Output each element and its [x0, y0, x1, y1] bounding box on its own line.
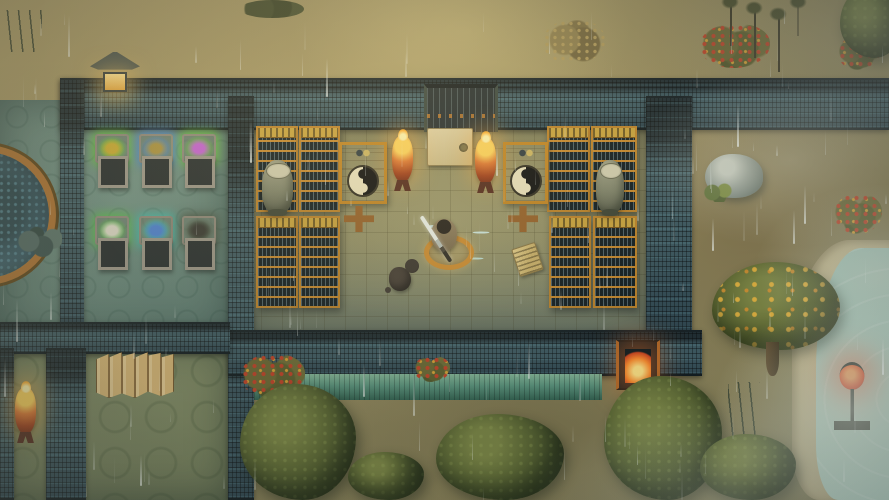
game-viewport — [0, 0, 889, 500]
player-character-meditating[interactable] — [422, 212, 466, 270]
gate-stone-tablet[interactable] — [427, 128, 473, 166]
bookshelf-se-1[interactable] — [549, 216, 591, 308]
tree-south-right[interactable] — [700, 434, 796, 500]
storage-rack-herb-yellow[interactable] — [95, 134, 125, 188]
incense-urn-left[interactable] — [262, 160, 293, 214]
bookshelf-sw-1[interactable] — [256, 216, 298, 308]
west-wall — [60, 78, 84, 346]
pet-animal[interactable] — [385, 256, 422, 298]
southwest-wall-vertical — [46, 348, 86, 500]
taiji-desk-left[interactable] — [339, 142, 387, 204]
sapling-2[interactable] — [750, 6, 760, 58]
sapling-1[interactable] — [726, 0, 736, 46]
tree-south-center[interactable] — [436, 414, 564, 500]
bookshelf-sw-2[interactable] — [299, 216, 340, 308]
storage-rack-herb-purple[interactable] — [182, 134, 212, 188]
bookshelf-se-2[interactable] — [593, 216, 637, 308]
storage-rack-dark-cloth[interactable] — [182, 216, 212, 270]
southwest-wall-horizontal — [0, 322, 230, 354]
taiji-desk-right[interactable] — [503, 142, 548, 204]
gold-folding-screen[interactable] — [96, 352, 174, 398]
library-east-wall — [646, 96, 692, 344]
library-brazier-left[interactable] — [392, 136, 413, 182]
storage-rack-blue-glow[interactable] — [139, 134, 169, 188]
fruit-tree[interactable] — [712, 262, 840, 350]
storage-rack-teal-glow[interactable] — [139, 216, 169, 270]
sapling-3[interactable] — [774, 12, 784, 72]
mossy-boulder[interactable] — [705, 154, 763, 198]
dark-shrubs-north — [240, 0, 304, 18]
tree-south-small[interactable] — [348, 452, 424, 500]
southwest-room-brazier[interactable] — [15, 388, 36, 434]
west-edge-wall — [0, 348, 14, 500]
sapling-4[interactable] — [794, 0, 802, 36]
bookshelf-nw-2[interactable] — [299, 126, 340, 212]
incense-urn-right[interactable] — [596, 160, 624, 214]
corner-plant-northwest — [6, 10, 42, 52]
pool-edge-rocks — [16, 226, 62, 260]
bookshelf-ne-1[interactable] — [547, 126, 590, 212]
storage-rack-white-item[interactable] — [95, 216, 125, 270]
shore-red-lantern[interactable] — [834, 362, 870, 430]
library-brazier-right[interactable] — [475, 138, 496, 184]
north-gate-door[interactable] — [424, 84, 498, 132]
wall-stone-lantern[interactable] — [90, 52, 140, 92]
tree-southwest[interactable] — [240, 384, 356, 500]
